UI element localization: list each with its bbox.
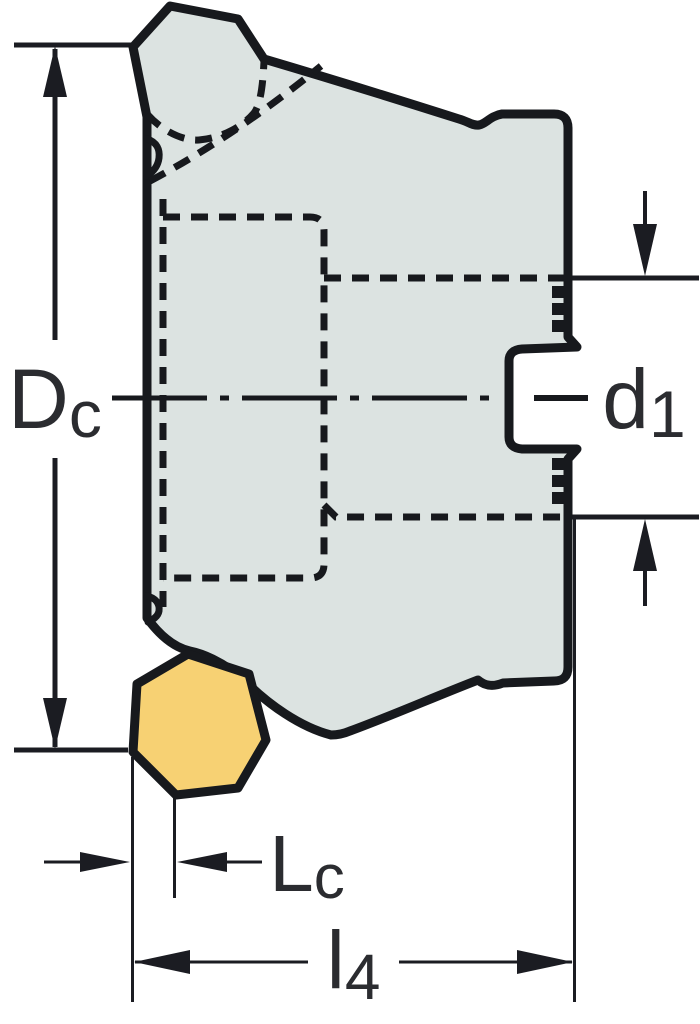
dc-label-sub: c bbox=[69, 381, 102, 447]
cutting-insert bbox=[133, 654, 266, 795]
d1-arrow-up bbox=[633, 519, 657, 571]
d1-label-sub: 1 bbox=[649, 381, 686, 447]
lc-dimension bbox=[44, 852, 262, 872]
lc-arrow-right bbox=[80, 852, 130, 872]
lc-arrow-left bbox=[177, 852, 227, 872]
d1-arrow-down bbox=[633, 224, 657, 276]
l4-arrow-left bbox=[134, 950, 190, 974]
cutter-body bbox=[133, 6, 577, 735]
dc-label-main: D bbox=[8, 357, 69, 441]
l4-label-main: l bbox=[327, 920, 345, 1002]
lc-label: Lc bbox=[260, 822, 354, 906]
lc-label-main: L bbox=[269, 824, 314, 904]
d1-label-main: d bbox=[602, 357, 649, 441]
d1-label: d1 bbox=[588, 340, 700, 457]
technical-drawing-stage: Dc d1 Lc l4 bbox=[0, 0, 700, 1024]
lc-label-sub: c bbox=[314, 847, 345, 909]
dc-arrow-down bbox=[43, 698, 67, 749]
dc-arrow-up bbox=[43, 46, 67, 97]
l4-arrow-right bbox=[517, 950, 573, 974]
l4-label-sub: 4 bbox=[345, 945, 381, 1009]
dc-label: Dc bbox=[0, 340, 110, 458]
l4-label: l4 bbox=[308, 908, 399, 1013]
